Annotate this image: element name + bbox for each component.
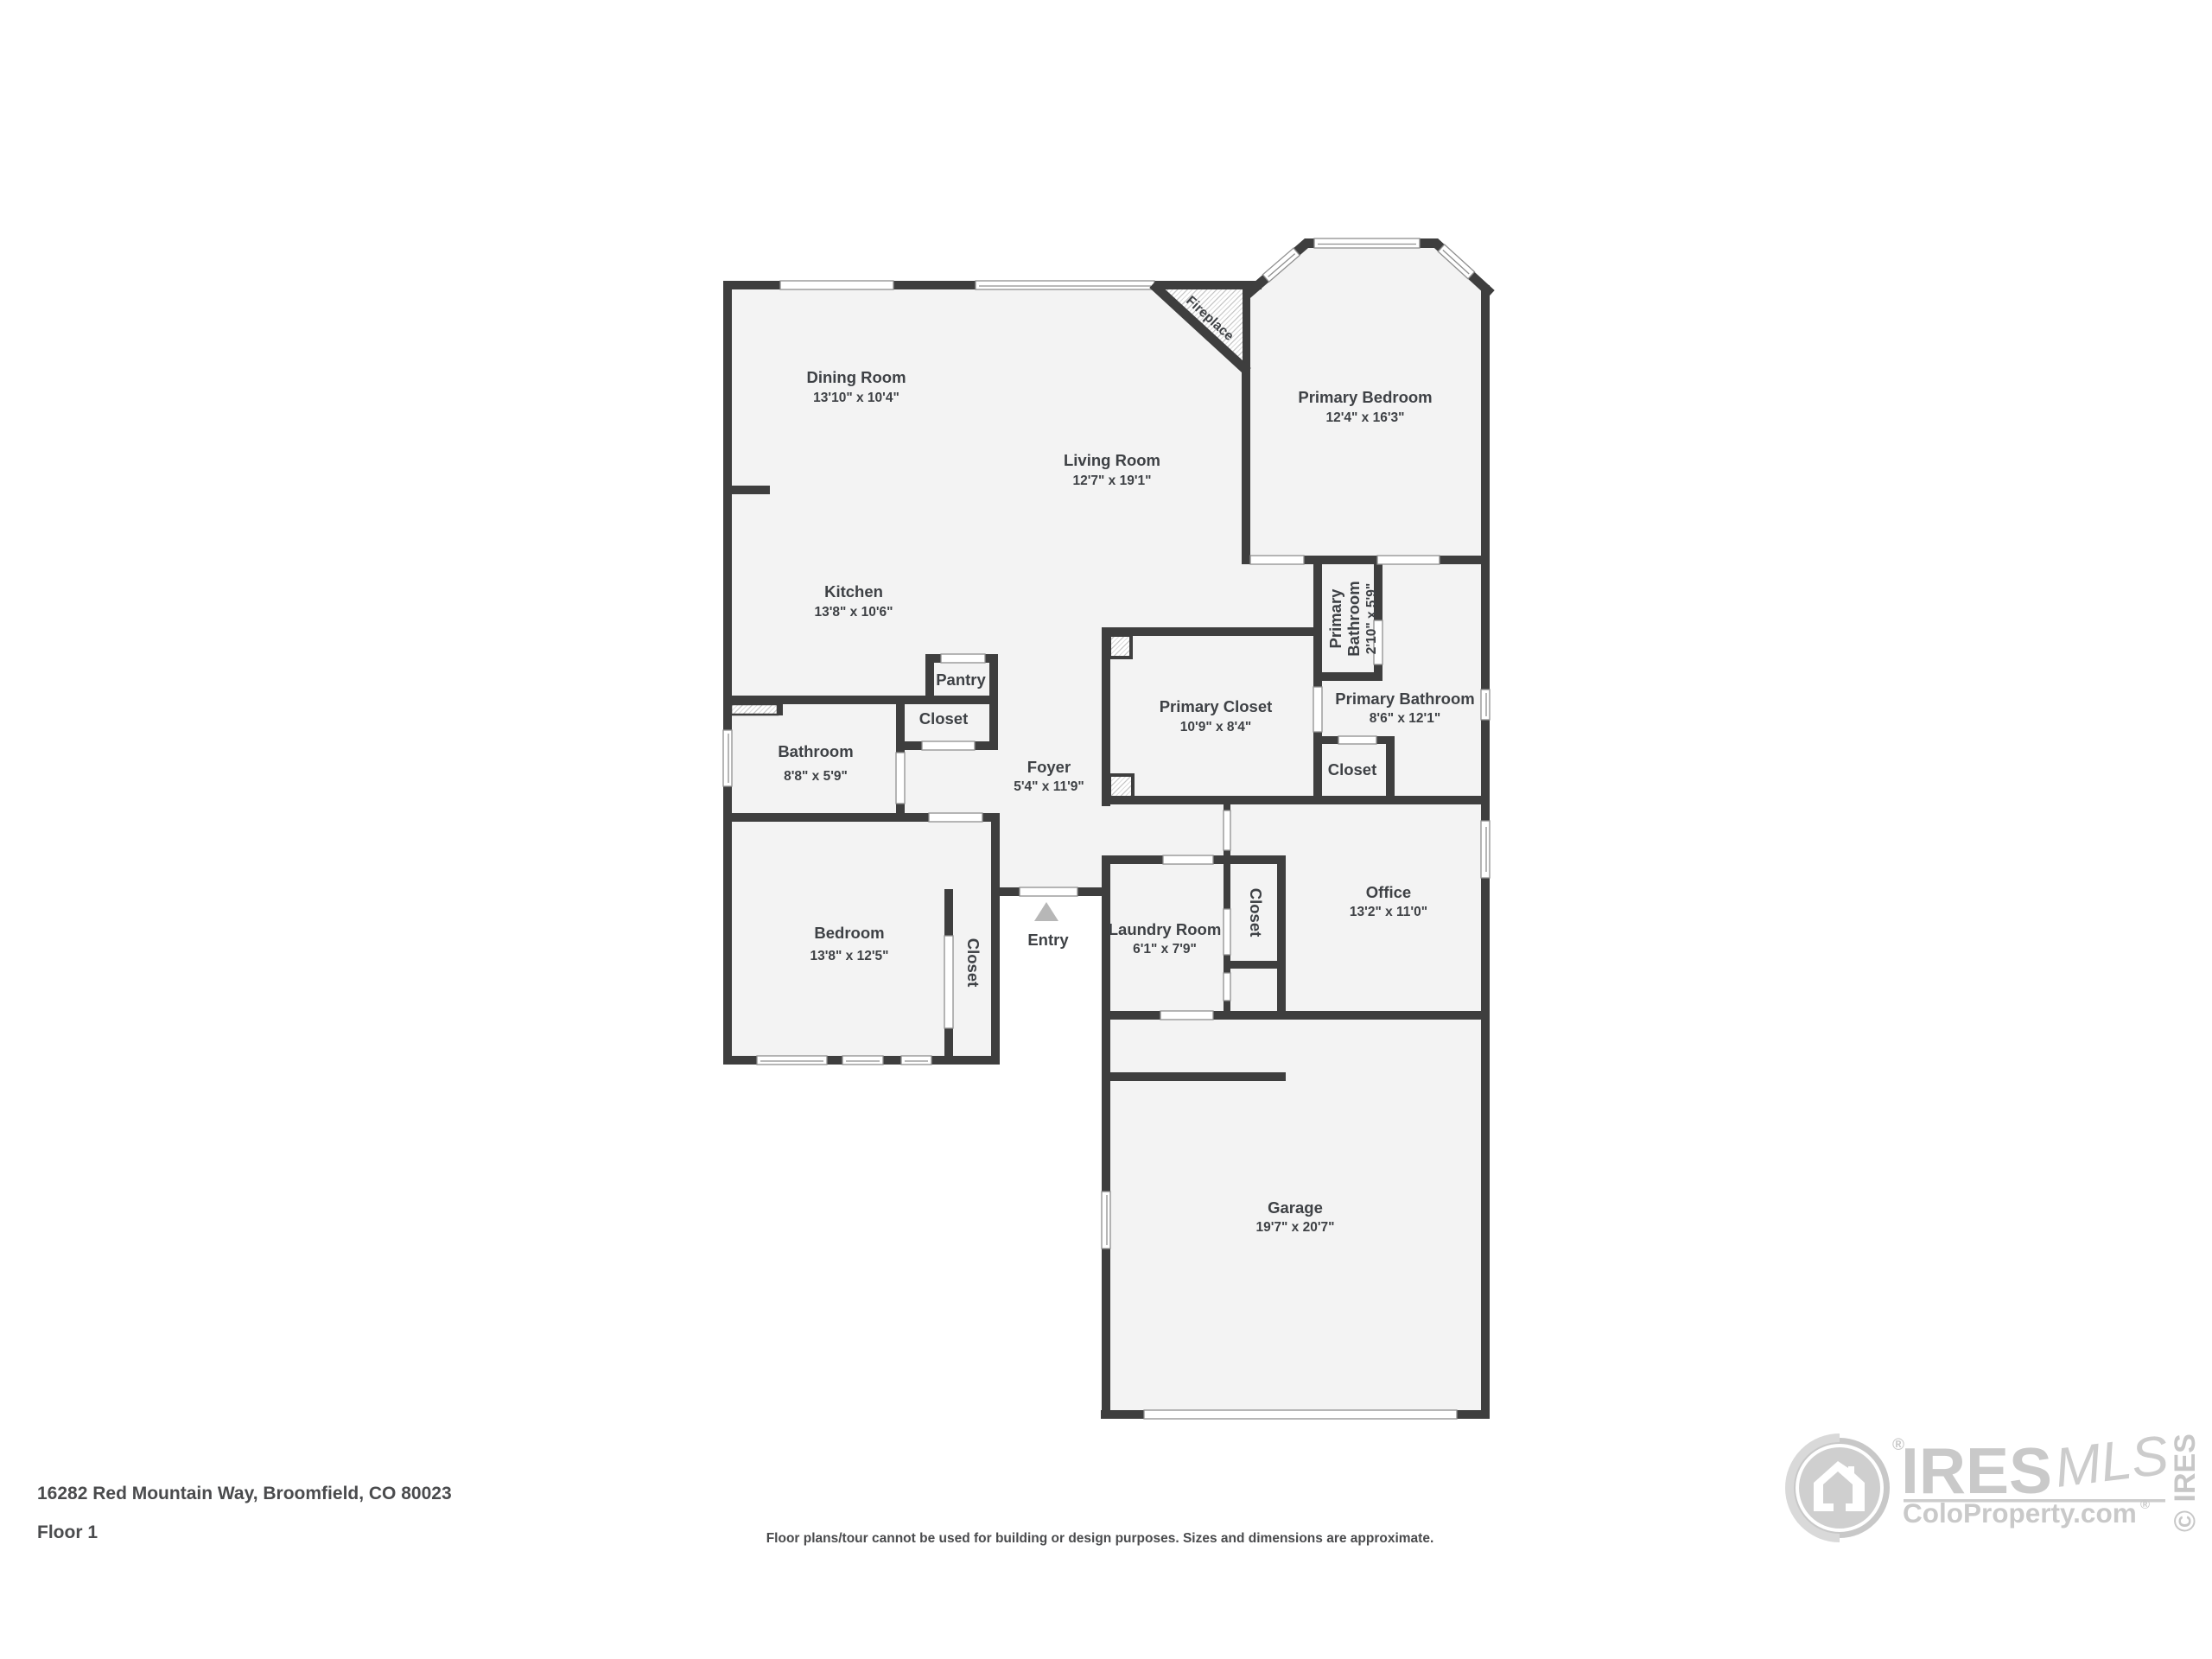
- svg-text:Dining Room: Dining Room: [806, 368, 906, 386]
- svg-text:ColoProperty.com: ColoProperty.com: [1903, 1497, 2137, 1529]
- svg-text:Bathroom: Bathroom: [778, 742, 853, 760]
- svg-text:Primary: Primary: [1326, 588, 1344, 649]
- svg-text:MLS: MLS: [2051, 1423, 2171, 1499]
- svg-text:19'7" x 20'7": 19'7" x 20'7": [1255, 1220, 1334, 1235]
- svg-text:8'8" x 5'9": 8'8" x 5'9": [784, 769, 848, 784]
- svg-text:8'6" x 12'1": 8'6" x 12'1": [1370, 711, 1440, 726]
- svg-text:IRES: IRES: [1901, 1434, 2052, 1507]
- svg-text:16282 Red Mountain Way, Broomf: 16282 Red Mountain Way, Broomfield, CO 8…: [37, 1484, 452, 1503]
- svg-text:Primary Bathroom: Primary Bathroom: [1335, 690, 1474, 708]
- svg-text:Living Room: Living Room: [1064, 451, 1160, 469]
- svg-text:Closet: Closet: [964, 938, 982, 988]
- svg-text:Primary Bedroom: Primary Bedroom: [1298, 388, 1432, 406]
- svg-text:© IRES: © IRES: [2169, 1433, 2202, 1532]
- svg-text:Pantry: Pantry: [936, 671, 986, 689]
- svg-text:12'4" x 16'3": 12'4" x 16'3": [1325, 410, 1404, 425]
- svg-text:Floor plans/tour cannot be use: Floor plans/tour cannot be used for buil…: [766, 1531, 1434, 1546]
- svg-text:Garage: Garage: [1268, 1198, 1323, 1217]
- svg-text:Kitchen: Kitchen: [824, 582, 883, 601]
- svg-text:2'10" x 5'9": 2'10" x 5'9": [1364, 583, 1379, 654]
- svg-text:Entry: Entry: [1027, 931, 1069, 949]
- svg-text:5'4" x 11'9": 5'4" x 11'9": [1014, 779, 1084, 794]
- svg-text:Closet: Closet: [1328, 760, 1377, 779]
- svg-text:Bathroom: Bathroom: [1344, 581, 1363, 656]
- svg-text:Bedroom: Bedroom: [814, 924, 884, 942]
- svg-text:Floor 1: Floor 1: [37, 1522, 98, 1542]
- svg-text:®: ®: [2140, 1497, 2150, 1512]
- svg-text:13'8" x 10'6": 13'8" x 10'6": [814, 605, 893, 620]
- svg-text:13'8" x 12'5": 13'8" x 12'5": [810, 949, 888, 963]
- svg-text:6'1" x 7'9": 6'1" x 7'9": [1133, 942, 1197, 957]
- svg-text:13'2" x 11'0": 13'2" x 11'0": [1350, 905, 1427, 919]
- svg-text:10'9" x 8'4": 10'9" x 8'4": [1180, 720, 1251, 734]
- svg-text:Closet: Closet: [919, 709, 969, 728]
- svg-text:Laundry Room: Laundry Room: [1109, 920, 1222, 938]
- svg-text:Primary Closet: Primary Closet: [1160, 697, 1273, 715]
- svg-text:13'10" x 10'4": 13'10" x 10'4": [813, 391, 899, 405]
- svg-text:Closet: Closet: [1247, 888, 1265, 938]
- svg-text:12'7" x 19'1": 12'7" x 19'1": [1072, 474, 1151, 488]
- svg-text:Office: Office: [1366, 883, 1411, 901]
- svg-text:Foyer: Foyer: [1027, 758, 1071, 776]
